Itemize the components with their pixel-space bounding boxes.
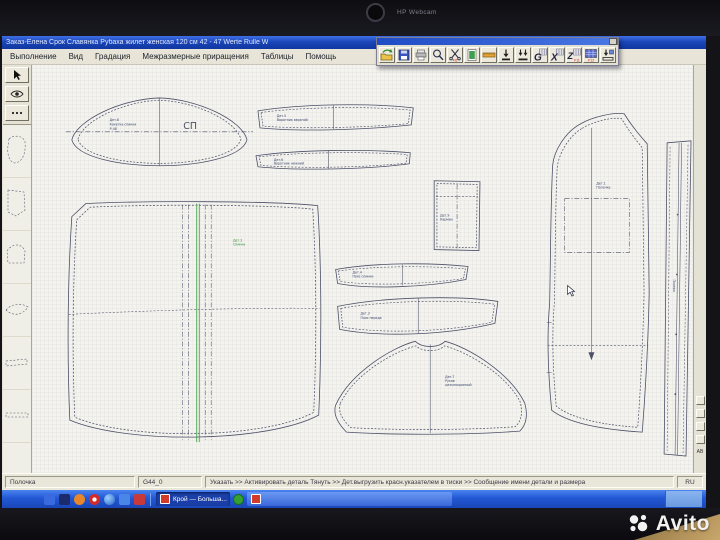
piece-back-yoke[interactable]: Дет.8 Кокетка спинки Р-48 СП [66, 98, 253, 166]
print-icon [414, 48, 428, 62]
g-table-button[interactable]: G [532, 47, 548, 63]
webcam: HP Webcam [366, 3, 437, 22]
pattern-thumbnail[interactable] [3, 390, 31, 443]
task-button-label: Крой — Больша... [173, 496, 227, 503]
download-arrow-icon [499, 48, 513, 62]
window-title: Заказ-Елена Срок Славянка Рубаха жилет ж… [6, 39, 268, 46]
load-detail-button[interactable] [498, 47, 514, 63]
right-panel-button[interactable] [696, 409, 705, 418]
pointer-arrow-icon [11, 69, 23, 81]
floating-toolbar-titlebar[interactable] [377, 38, 618, 45]
print-button[interactable] [413, 47, 429, 63]
ellipsis-icon [11, 110, 23, 116]
piece-annotation: Дет.3 [361, 311, 370, 315]
piece-collar-top[interactable]: Дет.5 Воротник верхний [258, 105, 413, 130]
save-icon [397, 48, 411, 62]
double-download-arrow-icon [516, 48, 530, 62]
right-panel: AB [693, 65, 706, 473]
preview-icon [465, 48, 479, 62]
g-table-icon: G [533, 48, 547, 62]
menu-grading[interactable]: Градация [95, 52, 130, 61]
piece-back-panel[interactable]: Дет.2 Спинка [68, 202, 321, 442]
pointer-tool-button[interactable] [5, 67, 29, 83]
menu-execute[interactable]: Выполнение [10, 52, 57, 61]
left-toolbar [2, 65, 32, 473]
svg-text:G: G [534, 53, 542, 63]
pattern-thumbnail[interactable] [3, 337, 31, 390]
visibility-tool-button[interactable] [5, 86, 29, 102]
webcam-lens-icon [366, 3, 385, 22]
app-icon [251, 494, 261, 504]
piece-annotation: Полочка [596, 186, 610, 190]
piece-annotation: Воротник нижний [274, 162, 304, 166]
status-cell-ref: G44_0 [138, 476, 202, 488]
z-table-button[interactable]: Z F11 [566, 47, 582, 63]
app-icon [160, 494, 170, 504]
taskbar-separator [150, 493, 151, 506]
quick-launch-icon-2[interactable] [59, 494, 70, 505]
svg-text:F6: F6 [453, 58, 458, 63]
svg-text:F11: F11 [574, 59, 580, 63]
piece-front-panel[interactable]: Дет.1 Полочка [547, 113, 650, 432]
pattern-thumbnail[interactable] [3, 125, 31, 178]
toolbar-close-button[interactable] [609, 38, 617, 45]
quick-launch-icon-7[interactable] [134, 494, 145, 505]
piece-annotation: Воротник верхний [277, 118, 308, 122]
f12-table-icon: F12 [584, 48, 598, 62]
pattern-thumbnail[interactable] [3, 178, 31, 231]
quick-launch-icon-3[interactable] [74, 494, 85, 505]
status-bar: Полочка G44_0 Указать >> Активировать де… [2, 473, 706, 490]
load-all-button[interactable] [515, 47, 531, 63]
cut-button[interactable]: F6 [447, 47, 463, 63]
tray-green-icon[interactable] [233, 494, 244, 505]
piece-annotation: Пояс переда [361, 316, 382, 320]
piece-annotation: Дет.8 [110, 118, 119, 122]
taskbar-task-kroy[interactable]: Крой — Больша... [156, 492, 230, 506]
piece-annotation: Спинка [233, 243, 245, 247]
pattern-thumbnail[interactable] [3, 284, 31, 337]
right-panel-label: AB [697, 449, 704, 455]
piece-annotation: Кокетка спинки [110, 122, 137, 126]
ruler-button[interactable] [481, 47, 497, 63]
right-panel-button[interactable] [696, 396, 705, 405]
menu-help[interactable]: Помощь [306, 52, 337, 61]
avito-logo-icon [627, 512, 651, 536]
piece-label: СП [183, 121, 197, 132]
z-table-icon: Z F11 [567, 48, 581, 62]
pattern-canvas[interactable]: Дет.8 Кокетка спинки Р-48 СП Дет.5 Ворот… [32, 65, 693, 473]
piece-annotation: Планка [672, 279, 676, 291]
ruler-icon [482, 48, 496, 62]
system-tray [665, 491, 702, 507]
status-active-detail: Полочка [5, 476, 135, 488]
more-tools-button[interactable] [5, 105, 29, 121]
pattern-piece-list [3, 124, 31, 473]
status-lang-indicator: RU [677, 476, 703, 488]
piece-annotation: Карман [440, 218, 453, 222]
piece-annotation: Р-48 [110, 127, 117, 131]
piece-placket[interactable]: Планка [664, 141, 691, 456]
piece-band-bottom[interactable]: Дет.3 Пояс переда [338, 298, 498, 334]
tray-clock-area [672, 494, 696, 504]
f12-table-button[interactable]: F12 [583, 47, 599, 63]
quick-launch-icon-4[interactable] [89, 494, 100, 505]
laptop-photo: HP Webcam Заказ-Елена Срок Славянка Руба… [0, 0, 720, 540]
quick-launch-icon-1[interactable] [44, 494, 55, 505]
piece-annotation: Пояс спинки [353, 274, 374, 278]
laptop-bezel-top: HP Webcam [0, 0, 720, 36]
laptop-bezel-bottom: Avito [0, 508, 720, 540]
app-window: Заказ-Елена Срок Славянка Рубаха жилет ж… [2, 36, 706, 508]
quick-launch [6, 494, 145, 505]
save-button[interactable] [396, 47, 412, 63]
piece-band-top[interactable]: Дет.4 Пояс спинки [336, 264, 468, 287]
watermark-text: Avito [656, 512, 710, 536]
floating-toolbar: F6 [376, 37, 619, 66]
x-table-icon: X [550, 48, 564, 62]
menu-view[interactable]: Вид [69, 52, 83, 61]
svg-text:Z: Z [567, 51, 574, 61]
windows-taskbar: Крой — Больша... [2, 490, 706, 508]
menu-intersize-increments[interactable]: Межразмерные приращения [142, 52, 249, 61]
quick-launch-icon-5[interactable] [104, 494, 115, 505]
piece-sleeve[interactable]: Дет.7 Рукав цельнокроеный [335, 341, 527, 434]
webcam-label: HP Webcam [397, 9, 437, 16]
zoom-button[interactable] [430, 47, 446, 63]
menu-tables[interactable]: Таблицы [261, 52, 294, 61]
unload-arrow-icon [601, 48, 615, 62]
svg-text:F12: F12 [588, 59, 594, 63]
eye-icon [10, 89, 24, 99]
open-icon [380, 48, 394, 62]
svg-text:X: X [550, 53, 559, 63]
scissors-icon: F6 [448, 48, 462, 62]
unload-button[interactable] [600, 47, 616, 63]
piece-annotation: цельнокроеный [445, 383, 471, 387]
status-hint: Указать >> Активировать деталь Тянуть >>… [205, 476, 674, 488]
quick-launch-icon-6[interactable] [119, 494, 130, 505]
open-button[interactable] [379, 47, 395, 63]
mouse-cursor [568, 285, 575, 296]
right-panel-button[interactable] [696, 435, 705, 444]
right-panel-button[interactable] [696, 422, 705, 431]
magnifier-icon [431, 48, 445, 62]
taskbar-task-2[interactable] [247, 492, 452, 506]
piece-pocket[interactable]: Дет.9 Карман [434, 181, 480, 251]
pattern-thumbnail[interactable] [3, 231, 31, 284]
work-area: Дет.8 Кокетка спинки Р-48 СП Дет.5 Ворот… [2, 65, 706, 473]
preview-button[interactable] [464, 47, 480, 63]
piece-collar-bottom[interactable]: Дет.6 Воротник нижний [256, 150, 410, 169]
avito-watermark: Avito [627, 512, 710, 536]
x-table-button[interactable]: X [549, 47, 565, 63]
